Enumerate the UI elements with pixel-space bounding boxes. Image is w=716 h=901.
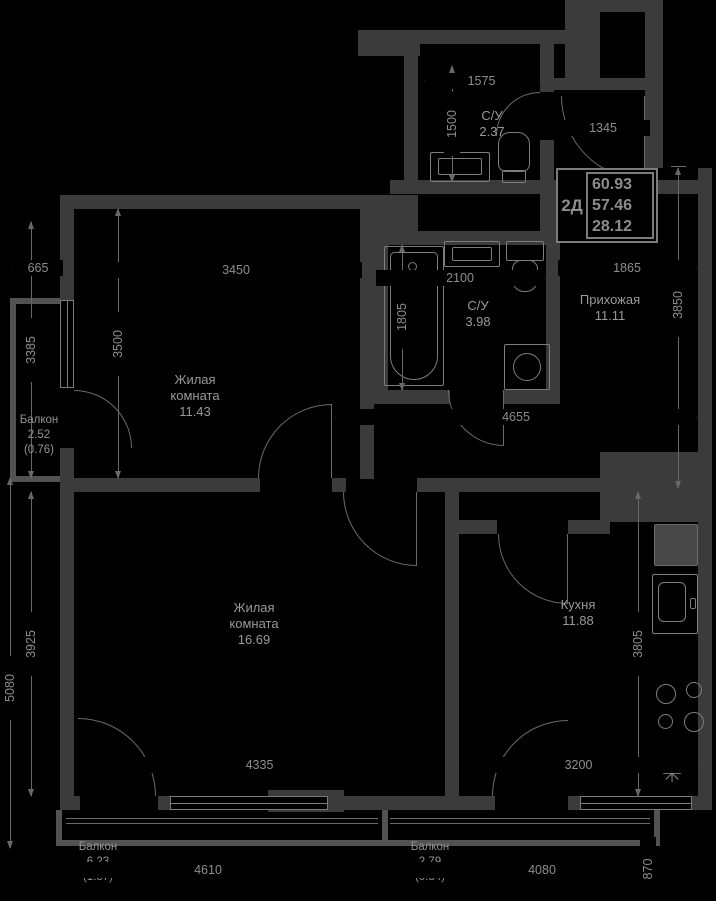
kitchen-sink-basin [658, 582, 686, 622]
room-area: 11.43 [135, 404, 255, 420]
door-leaf [567, 534, 568, 604]
stove-burner [656, 684, 676, 704]
wall [390, 180, 570, 194]
wall [60, 478, 260, 492]
door-leaf [331, 404, 332, 478]
window [580, 796, 692, 810]
wall [360, 209, 374, 479]
room-name: С/У [448, 298, 508, 314]
dim-bath-width: 2100 [376, 270, 544, 286]
sink-basin [438, 158, 482, 175]
door-arc-room1 [258, 404, 332, 478]
stove-burner [684, 712, 704, 732]
dim-balcony-bl-width: 4610 [30, 862, 386, 878]
wall [504, 390, 560, 404]
area-living: 57.46 [592, 195, 652, 216]
door-arc-balcony-left [74, 390, 132, 448]
area-rooms: 28.12 [592, 216, 652, 237]
dim-balcony-br-depth: 870 [640, 837, 656, 901]
wall [554, 78, 645, 90]
dim-room1-height: 3500 [110, 312, 126, 376]
dim-balcony-left-width: 665 [13, 260, 63, 276]
room-label-living2: Жилая комната 16.69 [194, 600, 314, 648]
wall [358, 30, 573, 44]
balcony-wall [10, 298, 60, 304]
toilet-tank [502, 170, 526, 183]
dim-balcony-left-height: 3385 [23, 318, 39, 382]
stove-burner [686, 682, 702, 698]
dim-su-top-height: 1500 [444, 92, 460, 156]
dim-room2-width: 4335 [74, 757, 445, 773]
wall [417, 478, 602, 492]
wall [332, 478, 346, 492]
room-area: 3.98 [448, 314, 508, 330]
balcony-glazing [66, 823, 378, 824]
door-leaf [416, 492, 417, 566]
room-name: Балкон [68, 840, 128, 855]
dim-su-top-width: 1575 [425, 73, 538, 89]
dim-hallway-height: 3850 [670, 273, 686, 337]
room-label-balcony-left: Балкон 2.52 (0.76) [9, 413, 69, 458]
wall [645, 0, 663, 168]
room-name: Жилая [194, 600, 314, 616]
window [170, 796, 328, 810]
apartment-info-box: 2Д 60.93 57.46 28.12 [556, 168, 658, 243]
room-area: 16.69 [194, 632, 314, 648]
wall [374, 390, 450, 404]
room-name: Прихожая [550, 292, 670, 308]
wall [404, 44, 418, 194]
room-area-reduced: (0.76) [9, 443, 69, 458]
wall [60, 796, 80, 810]
balcony-glazing [66, 818, 378, 819]
dim-corridor-span: 4655 [336, 409, 696, 425]
wall [568, 520, 610, 534]
wall [374, 195, 418, 231]
wall [445, 520, 497, 534]
dim-kitchen-height: 3805 [630, 612, 646, 676]
window [60, 300, 74, 388]
room-name: комната [194, 616, 314, 632]
room-area: 11.11 [550, 308, 670, 324]
room-name: Кухня [518, 597, 638, 613]
room-name: комната [135, 388, 255, 404]
dim-kitchen-width: 3200 [459, 757, 698, 773]
area-total: 60.93 [592, 174, 652, 195]
ventilation-shaft [600, 452, 670, 522]
wall [540, 44, 554, 92]
dim-entry-opening: 1345 [556, 120, 650, 136]
dimension-tick [671, 166, 686, 167]
dim-room1-width: 3450 [110, 262, 362, 278]
faucet [690, 598, 696, 609]
room-area: 2.52 [9, 428, 69, 443]
room-area: 2.37 [462, 124, 522, 140]
apartment-type-label: 2Д [558, 170, 586, 241]
room-label-bathroom: С/У 3.98 [448, 298, 508, 330]
wall [60, 195, 74, 300]
balcony-glazing [390, 818, 650, 819]
kitchen-cabinet [654, 524, 698, 566]
toilet-tank [506, 241, 544, 261]
door-arc-room2 [343, 492, 417, 566]
dim-room2-height: 3925 [23, 612, 39, 676]
floor-plan: ✳ 665 1575 1345 3450 2100 1865 4655 4335… [0, 0, 716, 900]
apartment-areas: 60.93 57.46 28.12 [586, 172, 654, 239]
room-name: Балкон [400, 840, 460, 855]
room-label-kitchen: Кухня 11.88 [518, 597, 638, 629]
washing-machine-drum [513, 353, 541, 381]
balcony-wall [10, 476, 60, 482]
room-area: 11.88 [518, 613, 638, 629]
wall [540, 140, 554, 180]
room-label-wc-small: С/У 2.37 [462, 108, 522, 140]
dim-bath-height: 1805 [394, 285, 410, 349]
dim-lower-section-height: 5080 [2, 656, 18, 720]
door-arc-kitchen [498, 534, 568, 604]
room-name: С/У [462, 108, 522, 124]
balcony-glazing [390, 823, 650, 824]
wall [60, 195, 374, 209]
room-name: Балкон [9, 413, 69, 428]
wall [60, 448, 74, 796]
room-label-hallway: Прихожая 11.11 [550, 292, 670, 324]
stove-burner [658, 714, 673, 729]
room-label-living1: Жилая комната 11.43 [135, 372, 255, 420]
sink-basin [452, 247, 492, 261]
room-name: Жилая [135, 372, 255, 388]
wall [445, 492, 459, 796]
